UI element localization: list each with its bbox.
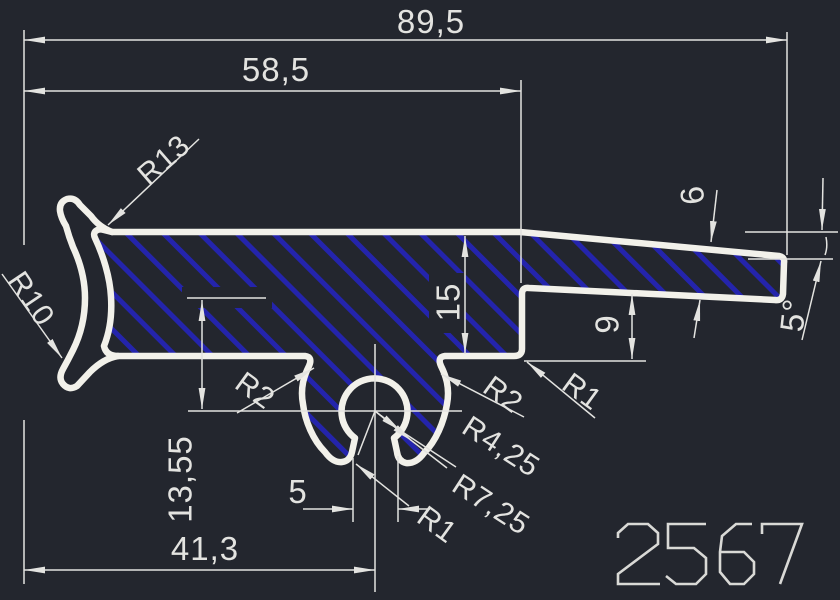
dim-slot-width: 5: [288, 473, 307, 510]
dim-arm-angle: 5°: [773, 296, 813, 333]
dim-width-to-step: 58,5: [242, 51, 310, 88]
dim-step-height: 9: [589, 314, 626, 333]
cad-viewport: 89,5 58,5 41,3 5 15 13,55 9 6 5° R13 R10…: [0, 0, 840, 600]
angle-5-arrow-top: [822, 178, 823, 230]
dim-width-to-clip-center: 41,3: [171, 530, 239, 567]
dim-clip-center-depth: 13,55: [162, 435, 199, 523]
drawing-canvas: 89,5 58,5 41,3 5 15 13,55 9 6 5° R13 R10…: [0, 0, 840, 600]
dim-body-height: 15: [430, 283, 467, 322]
dim-overall-width: 89,5: [397, 3, 465, 40]
